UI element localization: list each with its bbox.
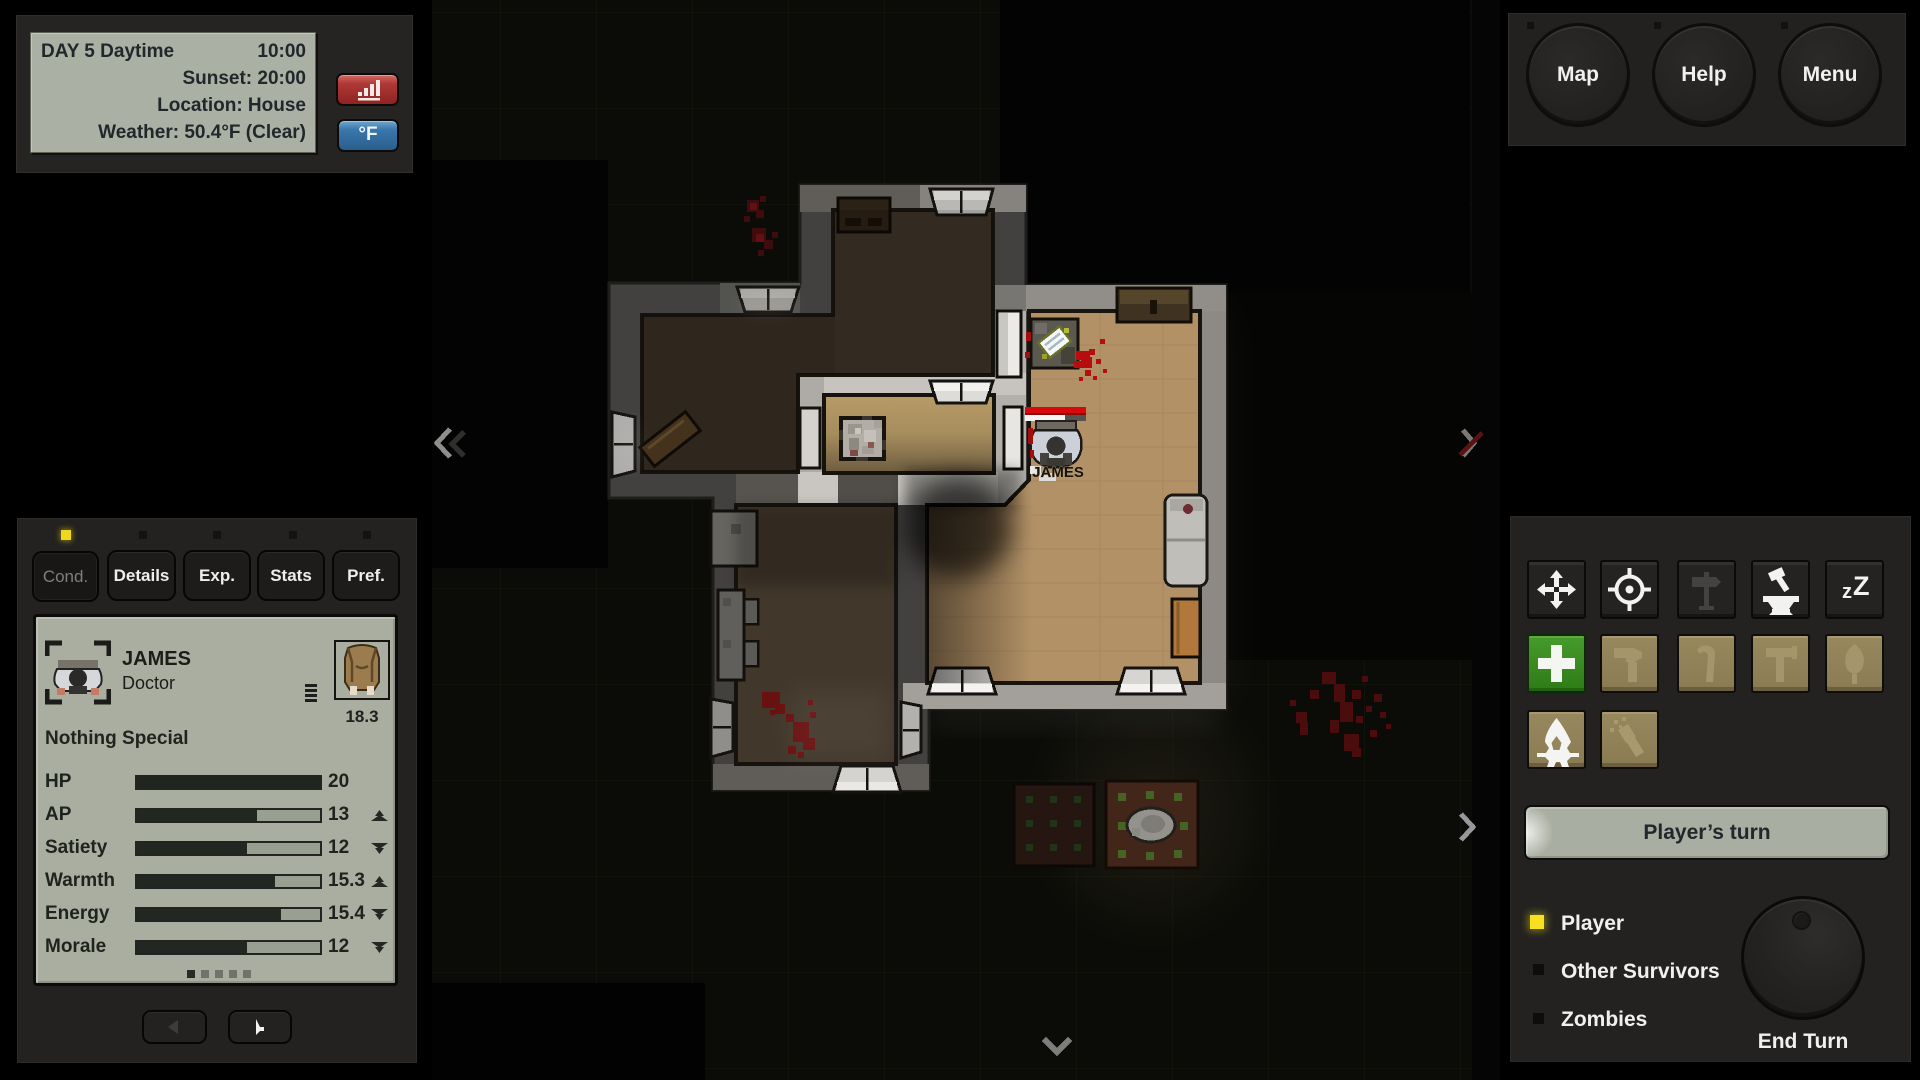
svg-text:Z: Z <box>1853 571 1870 601</box>
svg-text:z: z <box>1842 581 1852 603</box>
svg-text:JAMES: JAMES <box>1032 464 1084 481</box>
